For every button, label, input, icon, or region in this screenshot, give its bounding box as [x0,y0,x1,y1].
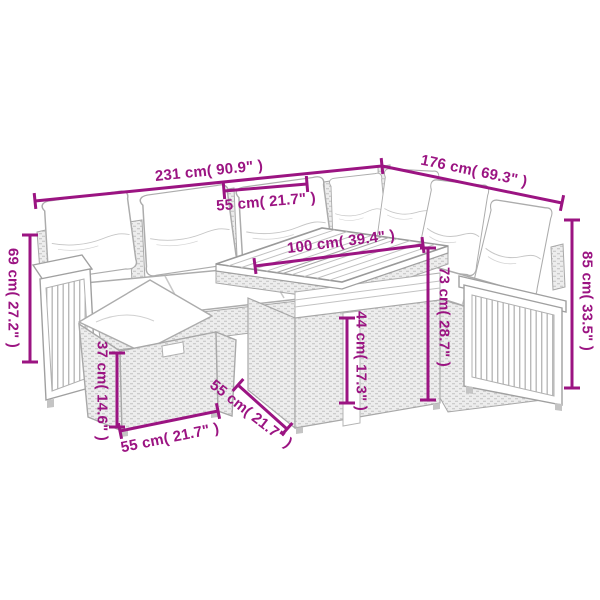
label-table-height: 44 cm( 17.3" ) [353,311,370,411]
furniture-sketch [0,0,600,600]
label-back-height: 85 cm( 33.5" ) [579,251,596,351]
label-arm-height: 69 cm( 27.2" ) [5,248,22,348]
label-ottoman-height: 37 cm( 14.6" ) [94,341,111,441]
label-sofa-body-height: 73 cm( 28.7" ) [436,267,453,367]
dim-arm-height [22,235,38,362]
product-dimension-diagram: 231 cm( 90.9" ) 176 cm( 69.3" ) 55 cm( 2… [0,0,600,600]
